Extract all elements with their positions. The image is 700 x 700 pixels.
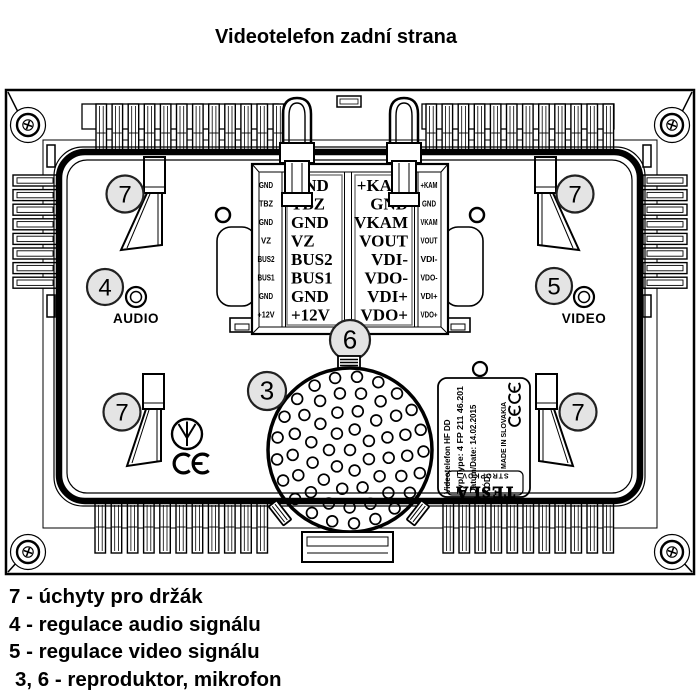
speaker-hole — [299, 410, 310, 421]
vent-fin — [96, 104, 107, 151]
vent-fin — [603, 104, 614, 151]
type-sticker: Videotelefon HF DD Typ/Type: 4 FP 211 46… — [438, 362, 530, 500]
legend-item-7: 7 - úchyty pro držák — [9, 583, 282, 611]
vent-fin — [176, 503, 187, 553]
speaker-hole — [357, 482, 368, 493]
vent-fin — [523, 104, 534, 151]
speaker — [268, 368, 432, 532]
terminal-label-right: VKAM — [354, 213, 408, 232]
vent-fin — [257, 503, 268, 553]
terminal-label-right: VOUT — [359, 232, 408, 251]
vent-fin — [241, 503, 252, 553]
vent-fin — [571, 104, 582, 151]
video-trimmer — [574, 287, 594, 307]
vent-fin — [128, 104, 139, 151]
terminal-label-left: BUS2 — [291, 250, 333, 269]
speaker-hole — [330, 373, 341, 384]
speaker-hole — [278, 475, 289, 486]
speaker-hole — [374, 471, 385, 482]
terminal-pin-label-left: TBZ — [259, 199, 273, 209]
vent-fin — [507, 104, 518, 151]
vent-fin — [177, 104, 188, 151]
terminal-pin-label-right: VDO+ — [421, 310, 438, 320]
corner-screw — [11, 535, 46, 570]
speaker-hole — [349, 465, 360, 476]
vent-fin — [160, 104, 171, 151]
terminal-pin-label-left: GND — [259, 180, 273, 190]
terminal-pin-label-left: BUS2 — [258, 254, 275, 264]
side-vent-slot — [13, 204, 57, 215]
speaker-hole — [327, 516, 338, 527]
callout-5-number: 5 — [547, 274, 560, 301]
callout-6: 6 — [330, 320, 370, 360]
terminal-pin-label-left: GND — [259, 217, 273, 227]
terminal-pin-label-right: VOUT — [421, 236, 439, 246]
side-vent-slot — [13, 248, 57, 259]
legend: 7 - úchyty pro držák 4 - regulace audio … — [9, 583, 282, 693]
speaker-hole — [375, 396, 386, 407]
callout-4-number: 4 — [98, 275, 111, 302]
sticker-vent-hole — [473, 362, 487, 376]
terminal-label-left: GND — [291, 287, 329, 306]
audio-label: AUDIO — [113, 311, 159, 326]
vent-fin — [241, 104, 252, 151]
side-vent-slot — [643, 248, 687, 259]
vent-fin — [539, 503, 550, 553]
brand-logo-text: TESLA — [455, 483, 515, 500]
vent-fin — [442, 104, 453, 151]
sticker-brand-rotated: TESLA STROPKOV — [455, 472, 515, 501]
vent-fin — [555, 104, 566, 151]
speaker-hole — [382, 432, 393, 443]
speaker-hole — [315, 418, 326, 429]
terminal-label-right: VDO+ — [361, 306, 408, 325]
vent-fin — [555, 503, 566, 553]
side-vent-slot — [643, 204, 687, 215]
speaker-hole — [396, 471, 407, 482]
vent-fin — [507, 503, 518, 553]
vent-fin — [523, 503, 534, 553]
legend-item-5: 5 - regulace video signálu — [9, 638, 282, 666]
vent-fin — [208, 503, 219, 553]
vent-fin — [112, 104, 123, 151]
speaker-hole — [400, 429, 411, 440]
terminal-label-right: VDI- — [371, 250, 408, 269]
corner-screw — [11, 108, 46, 143]
side-vent-slot — [13, 219, 57, 230]
speaker-hole — [306, 487, 317, 498]
corner-screw — [655, 535, 690, 570]
callout-5: 5 — [536, 268, 572, 304]
speaker-hole — [293, 470, 304, 481]
speaker-hole — [306, 437, 317, 448]
vent-fins-bottom-left — [95, 503, 268, 553]
speaker-hole — [364, 436, 375, 447]
speaker-hole — [289, 428, 300, 439]
vent-fin — [192, 503, 203, 553]
speaker-hole — [272, 432, 283, 443]
brand-city-text: STROPKOV — [461, 472, 508, 479]
speaker-hole — [373, 377, 384, 388]
terminal-pin-label-left: VZ — [261, 236, 271, 246]
vent-fin — [209, 104, 220, 151]
terminal-pin-label-right: GND — [422, 199, 436, 209]
side-vent-slot — [643, 263, 687, 274]
speaker-hole — [415, 424, 426, 435]
speaker-hole — [292, 394, 303, 405]
callout-7-top-left: 7 — [107, 176, 144, 213]
speaker-hole — [352, 406, 363, 417]
bottom-center-slot — [302, 532, 393, 562]
speaker-hole — [324, 445, 335, 456]
vent-fins-bottom-right — [443, 503, 614, 553]
side-vent-slot — [643, 233, 687, 244]
terminal-pin-label-left: GND — [259, 291, 273, 301]
terminal-label-right: VDI+ — [367, 287, 408, 306]
side-vent-slot — [643, 219, 687, 230]
audio-trimmer — [126, 287, 146, 307]
vent-fin — [571, 503, 582, 553]
speaker-hole — [418, 446, 429, 457]
speaker-hole — [279, 411, 290, 422]
callout-7-bottom-right: 7 — [560, 394, 597, 431]
speaker-hole — [414, 468, 425, 479]
callout-6-number: 6 — [343, 325, 357, 355]
speaker-hole — [315, 396, 326, 407]
speaker-hole — [406, 405, 417, 416]
video-label: VIDEO — [562, 311, 607, 326]
speaker-hole — [402, 450, 413, 461]
side-vent-slot — [643, 277, 687, 288]
terminal-pin-label-right: VDI+ — [421, 291, 438, 301]
sticker-made-in: MADE IN SLOVAKIA — [501, 402, 508, 469]
speaker-hole — [364, 454, 375, 465]
vent-fin — [475, 503, 486, 553]
terminal-pin-label-right: VDO- — [421, 273, 438, 283]
vent-fin — [95, 503, 106, 553]
vent-fin — [587, 503, 598, 553]
callout-7-bottom-left: 7 — [104, 394, 141, 431]
callout-4: 4 — [87, 269, 123, 305]
vent-fin — [257, 104, 268, 151]
vent-fin — [144, 503, 155, 553]
speaker-hole — [370, 514, 381, 525]
callout-3-number: 3 — [260, 376, 274, 406]
speaker-hole — [272, 454, 283, 465]
speaker-hole — [345, 445, 356, 456]
speaker-hole — [392, 388, 403, 399]
terminal-label-left: VZ — [291, 232, 315, 251]
callout-7-number: 7 — [115, 400, 128, 427]
side-vent-slot — [13, 190, 57, 201]
vent-fin — [426, 104, 437, 151]
speaker-hole — [307, 457, 318, 468]
side-vent-slot — [13, 175, 57, 186]
vent-fin — [127, 503, 137, 553]
callout-3: 3 — [248, 372, 286, 410]
terminal-pin-label-right: +KAM — [421, 180, 438, 190]
vent-fin — [443, 503, 454, 553]
terminal-block: GND+KAMGND+KAMTBZGNDTBZGNDGNDVKAMGNDVKAM… — [252, 164, 448, 334]
speaker-hole — [391, 410, 402, 421]
speaker-hole — [332, 428, 343, 439]
callout-7-number: 7 — [118, 182, 131, 209]
speaker-hole — [332, 407, 343, 418]
speaker-hole — [307, 508, 318, 519]
callout-7-number: 7 — [571, 400, 584, 427]
speaker-hole — [309, 380, 320, 391]
vent-fin — [539, 104, 550, 151]
terminal-pin-label-left: +12V — [258, 310, 275, 320]
speaker-hole — [318, 474, 329, 485]
speaker-hole — [356, 388, 367, 399]
terminal-label-left: GND — [291, 213, 329, 232]
vent-fin — [459, 503, 470, 553]
speaker-hole — [287, 450, 298, 461]
callout-7-top-right: 7 — [557, 176, 594, 213]
speaker-hole — [332, 461, 343, 472]
vent-fin — [603, 503, 614, 553]
corner-screw — [655, 108, 690, 143]
terminal-label-left: BUS1 — [291, 269, 333, 288]
side-vent-slot — [643, 175, 687, 186]
speaker-hole — [352, 371, 363, 382]
sticker-line3: Datum/Date: 14.02.2015 — [469, 404, 478, 494]
terminal-pin-label-right: VDI- — [421, 254, 438, 264]
top-center-vent — [337, 96, 361, 107]
side-vent-slot — [13, 277, 57, 288]
vent-fin — [111, 503, 122, 553]
terminal-label-left: +12V — [291, 306, 331, 325]
terminal-pin-label-left: BUS1 — [258, 273, 275, 283]
speaker-hole — [389, 503, 400, 514]
legend-item-4: 4 - regulace audio signálu — [9, 611, 282, 639]
vent-fin — [587, 104, 598, 151]
terminal-pin-label-right: VKAM — [421, 217, 438, 227]
callout-7-number: 7 — [568, 182, 581, 209]
side-vent-slot — [13, 263, 57, 274]
vent-fin — [160, 503, 171, 553]
vent-fin — [491, 503, 502, 553]
speaker-hole — [349, 518, 360, 529]
vent-fin — [225, 503, 236, 553]
side-vent-slot — [643, 190, 687, 201]
terminal-label-right: VDO- — [365, 269, 409, 288]
speaker-hole — [371, 415, 382, 426]
side-vent-slot — [13, 233, 57, 244]
vent-fin — [225, 104, 236, 151]
vent-fin — [490, 104, 501, 151]
vent-fin — [458, 104, 469, 151]
legend-item-3-6: 3, 6 - reproduktor, mikrofon — [9, 666, 282, 694]
speaker-hole — [335, 388, 346, 399]
speaker-hole — [349, 424, 360, 435]
speaker-hole — [383, 452, 394, 463]
vent-fin — [474, 104, 485, 151]
vent-fin — [193, 104, 204, 151]
vent-fin — [144, 104, 155, 151]
